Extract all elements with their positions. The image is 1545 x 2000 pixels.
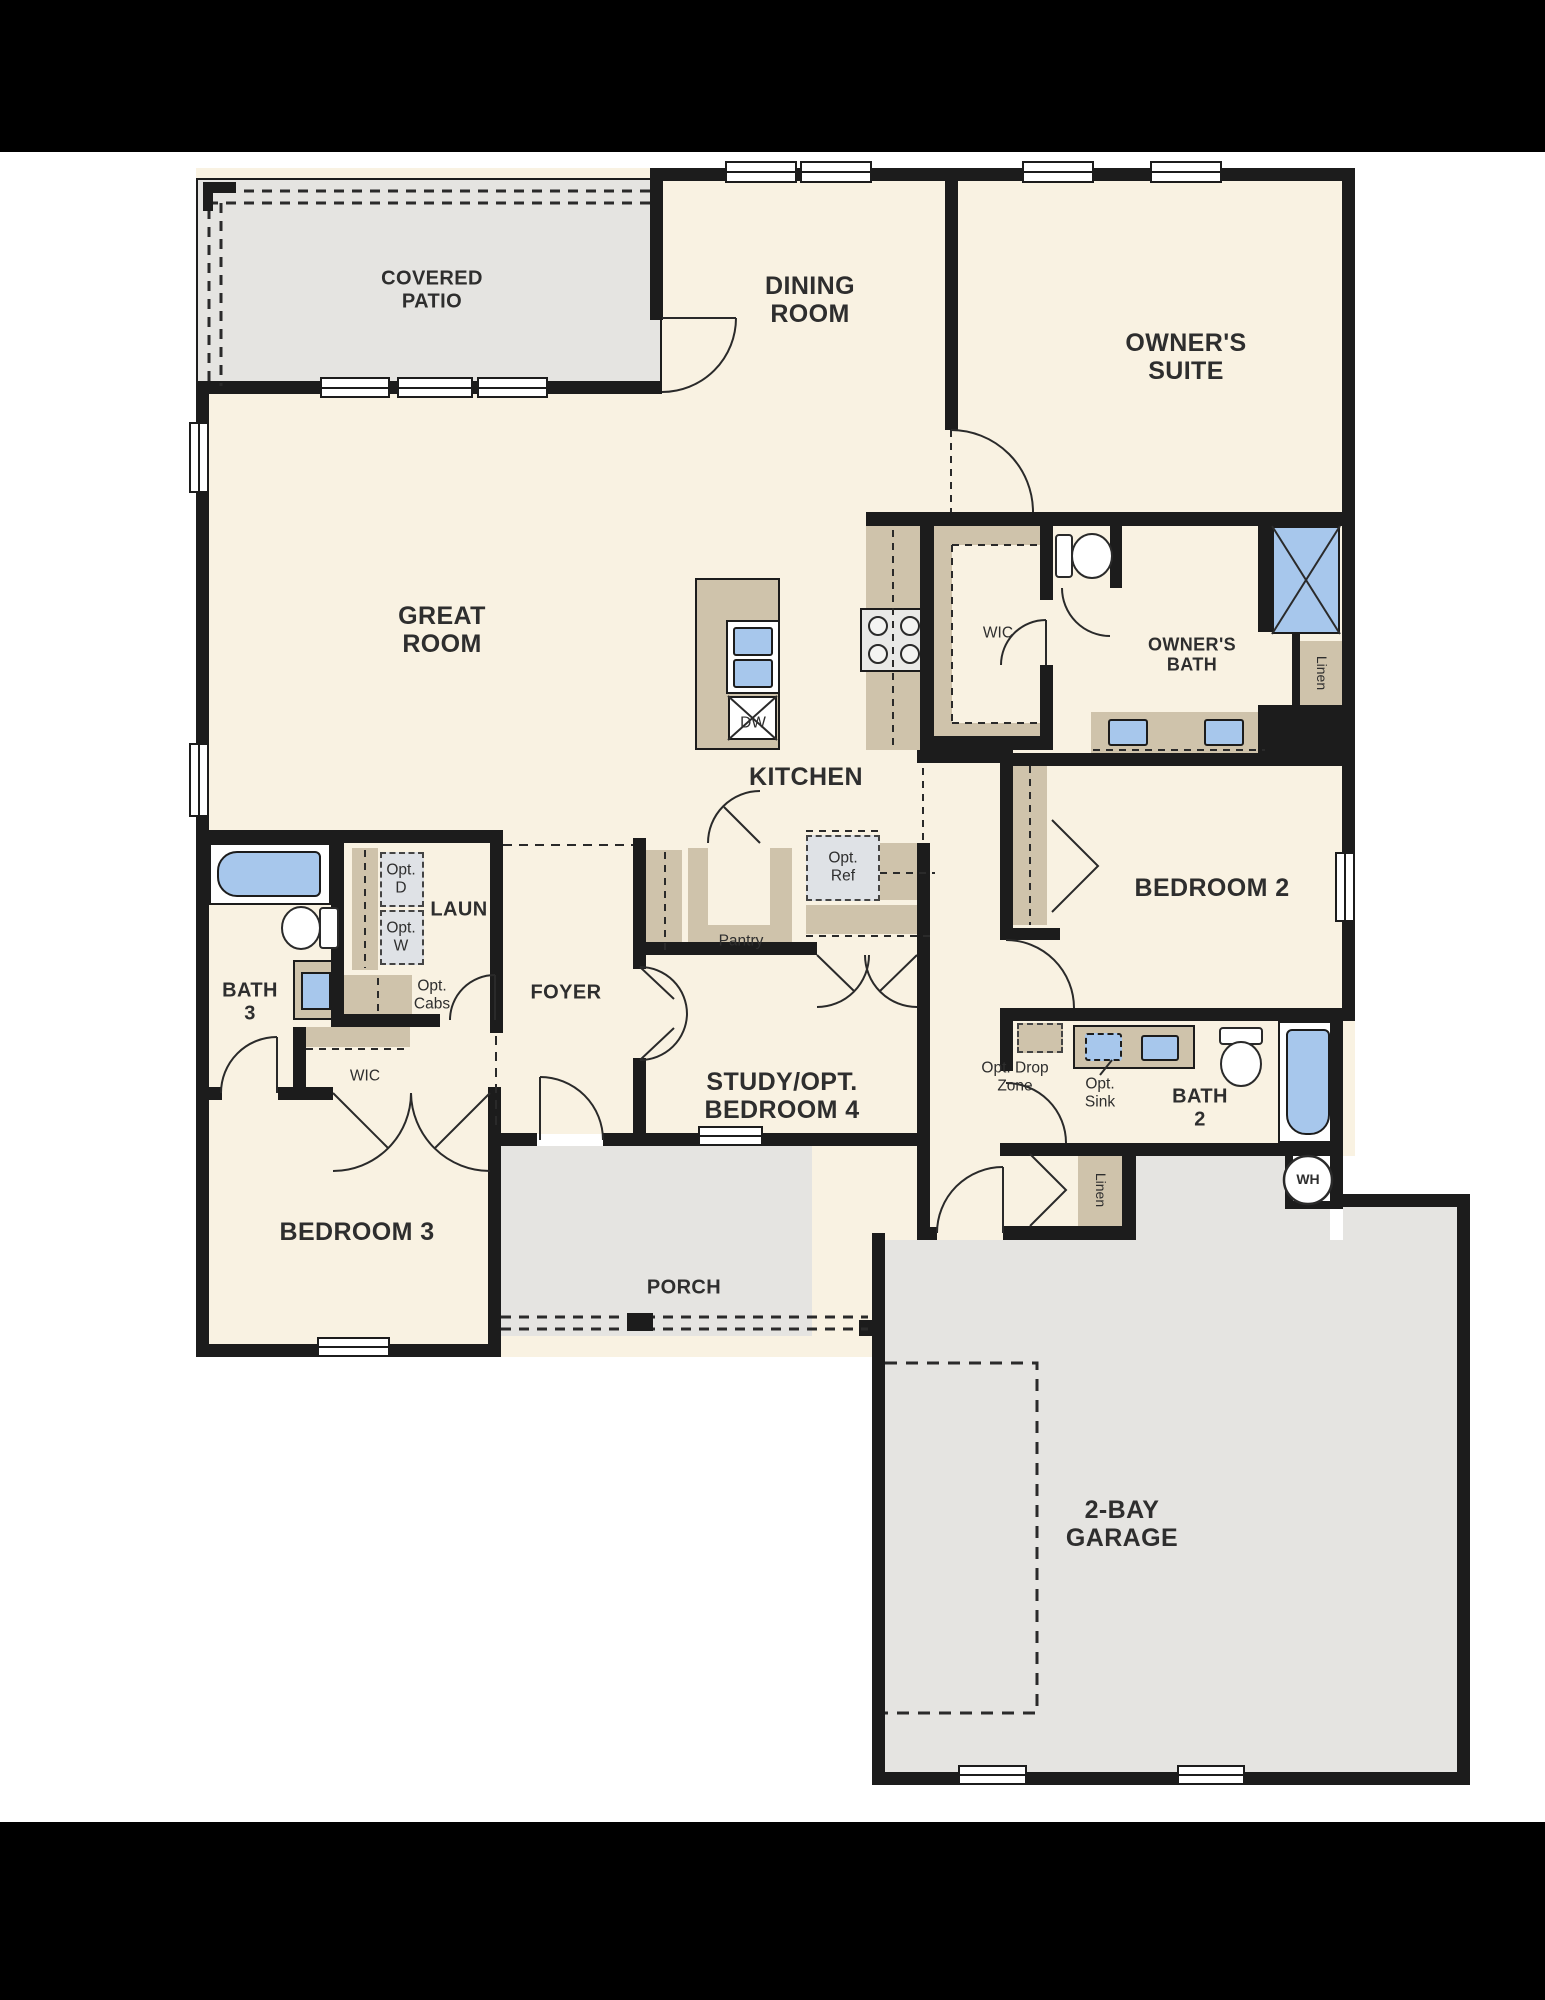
wall: [866, 512, 1355, 526]
room-label-garage: 2-BAY GARAGE: [1066, 1496, 1178, 1553]
room-label-bedroom2: BEDROOM 2: [1134, 874, 1289, 902]
wall: [1000, 1008, 1355, 1021]
wall: [859, 1320, 885, 1336]
label-opt-cabs: Opt. Cabs: [414, 978, 450, 1013]
label-opt-ref: Opt. Ref: [828, 850, 857, 885]
room-label-bedroom3: BEDROOM 3: [279, 1218, 434, 1246]
optional-drop-zone-cabinet: [1017, 1023, 1063, 1053]
wall: [633, 838, 646, 969]
owner-wic-shelf-left: [934, 545, 952, 723]
room-label-laundry: LAUN: [430, 899, 487, 922]
wall: [1040, 665, 1053, 750]
window: [320, 377, 390, 398]
wall: [344, 1014, 440, 1027]
laundry-cabinet: [352, 848, 378, 970]
label-pantry: Pantry: [719, 932, 764, 950]
wall: [1343, 1194, 1470, 1207]
window: [1335, 852, 1355, 922]
wall: [278, 1087, 333, 1100]
front-door-sill: [537, 1134, 603, 1146]
wall: [650, 181, 663, 320]
bath2-tub: [1286, 1029, 1330, 1135]
wall: [495, 1014, 503, 1027]
floor-plan: COVERED PATIO DINING ROOM OWNER'S SUITE …: [0, 0, 1545, 2000]
wall: [490, 843, 503, 1033]
wall: [1285, 1201, 1343, 1209]
label-opt-sink: Opt. Sink: [1085, 1076, 1115, 1111]
wall: [603, 1133, 930, 1146]
cooktop: [860, 608, 928, 672]
window: [1150, 161, 1222, 183]
wall: [1003, 1226, 1122, 1240]
bath3-tub: [217, 851, 321, 897]
wall: [1000, 753, 1355, 766]
room-label-covered-patio: COVERED PATIO: [381, 267, 483, 312]
wall: [1000, 766, 1013, 940]
room-label-bath3: BATH 3: [222, 979, 278, 1024]
room-label-owner-wic: WIC: [983, 624, 1013, 642]
label-owner-linen: Linen: [1313, 656, 1329, 690]
bedroom2-closet-shelf: [1013, 763, 1047, 925]
porch-area: [501, 1146, 812, 1336]
wall: [209, 830, 503, 843]
wall: [1457, 1207, 1470, 1785]
wall: [1258, 526, 1272, 632]
label-opt-drop-zone: Opt. Drop Zone: [981, 1060, 1048, 1095]
window: [1177, 1765, 1245, 1785]
room-label-bath2: BATH 2: [1172, 1085, 1228, 1130]
window: [725, 161, 797, 183]
broom-cabinet: [646, 850, 682, 952]
wall: [872, 1233, 885, 1785]
wall: [1110, 526, 1122, 588]
window: [189, 422, 209, 493]
wall: [917, 1227, 937, 1240]
window: [317, 1337, 390, 1357]
room-label-wic-bed3: WIC: [350, 1067, 380, 1085]
island-sink-basin-1: [733, 627, 773, 656]
owner-sink-1: [1108, 719, 1148, 746]
window: [698, 1126, 763, 1146]
wall: [331, 843, 344, 1027]
room-label-study: STUDY/OPT. BEDROOM 4: [704, 1068, 859, 1125]
room-label-porch: PORCH: [647, 1277, 721, 1300]
room-label-owners-suite: OWNER'S SUITE: [1125, 329, 1246, 386]
room-label-owners-bath: OWNER'S BATH: [1148, 635, 1236, 676]
wall: [920, 736, 1040, 750]
bath2-optional-sink: [1085, 1033, 1122, 1061]
room-label-kitchen: KITCHEN: [749, 763, 863, 791]
kitchen-counter-south: [806, 905, 930, 934]
owner-sink-2: [1204, 719, 1244, 746]
window: [397, 377, 473, 398]
wall: [1342, 181, 1355, 766]
window: [1022, 161, 1094, 183]
wall: [920, 526, 934, 750]
label-opt-dryer: Opt. D: [386, 862, 415, 897]
wall: [917, 843, 930, 1240]
owner-wic-shelf-bottom: [934, 723, 1040, 736]
window: [958, 1765, 1027, 1785]
wall: [1040, 526, 1053, 600]
bath3-sink: [301, 972, 331, 1010]
wall: [633, 1058, 646, 1146]
wic3-shelf: [300, 1027, 410, 1047]
wall: [917, 750, 1013, 763]
wall: [1292, 634, 1300, 705]
label-opt-washer: Opt. W: [386, 920, 415, 955]
island-sink-basin-2: [733, 659, 773, 688]
window: [189, 743, 209, 817]
wall: [488, 1133, 537, 1146]
garage-area-right: [1343, 1207, 1457, 1240]
bath2-sink: [1141, 1035, 1179, 1061]
owner-wic-shelf-top: [934, 526, 1040, 545]
wall: [1122, 1148, 1136, 1240]
label-hall-linen: Linen: [1092, 1173, 1108, 1207]
wall: [945, 181, 958, 430]
wall: [488, 1087, 501, 1357]
label-water-heater: WH: [1296, 1172, 1319, 1188]
wall: [196, 394, 209, 1357]
wall: [490, 1087, 501, 1100]
wall: [209, 1087, 222, 1100]
room-label-dining: DINING ROOM: [765, 272, 855, 329]
room-label-great-room: GREAT ROOM: [398, 602, 486, 659]
label-dishwasher: DW: [740, 714, 766, 732]
wall: [1285, 1149, 1293, 1209]
owner-shower: [1272, 526, 1340, 634]
window: [800, 161, 872, 183]
window: [477, 377, 548, 398]
wall: [1013, 928, 1060, 940]
room-label-foyer: FOYER: [531, 982, 602, 1005]
wall: [1330, 1021, 1343, 1207]
